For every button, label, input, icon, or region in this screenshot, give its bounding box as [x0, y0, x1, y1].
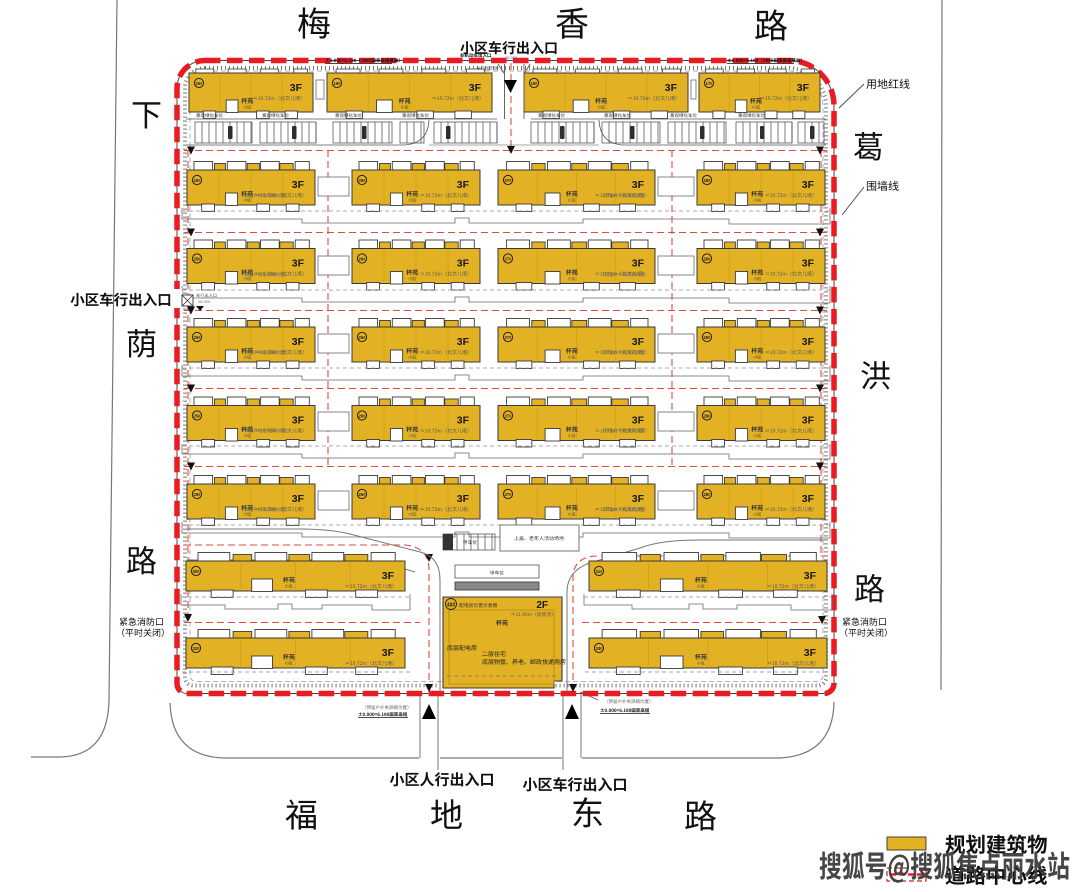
svg-text:3F: 3F	[290, 82, 303, 94]
svg-text:28#: 28#	[704, 178, 712, 183]
svg-text:3F: 3F	[802, 258, 815, 270]
svg-text:3F: 3F	[797, 82, 810, 94]
svg-text:3F: 3F	[292, 493, 305, 505]
svg-text:20#: 20#	[196, 81, 204, 86]
svg-text:26#: 26#	[359, 178, 367, 183]
svg-text:27#: 27#	[505, 178, 513, 183]
svg-text:18#: 18#	[531, 81, 539, 86]
svg-text:26#: 26#	[359, 256, 367, 261]
svg-text:25#: 25#	[194, 492, 202, 497]
svg-text:3F: 3F	[382, 570, 395, 582]
svg-text:25#: 25#	[194, 178, 202, 183]
svg-text:31#: 31#	[596, 569, 604, 574]
svg-text:27#: 27#	[505, 335, 513, 340]
svg-text:3F: 3F	[457, 493, 470, 505]
svg-text:26#: 26#	[359, 492, 367, 497]
svg-text:3F: 3F	[632, 336, 645, 348]
svg-text:32#: 32#	[193, 646, 201, 651]
svg-text:33#: 33#	[596, 646, 604, 651]
svg-text:27#: 27#	[505, 492, 513, 497]
svg-text:25#: 25#	[194, 256, 202, 261]
svg-text:27#: 27#	[505, 413, 513, 418]
svg-text:26#: 26#	[359, 335, 367, 340]
svg-text:3F: 3F	[457, 258, 470, 270]
svg-text:3F: 3F	[802, 179, 815, 191]
svg-text:17#: 17#	[706, 81, 714, 86]
svg-text:28#: 28#	[704, 256, 712, 261]
svg-text:3F: 3F	[292, 179, 305, 191]
svg-text:3F: 3F	[665, 82, 678, 94]
svg-text:26.300: 26.300	[198, 299, 211, 304]
svg-text:27#: 27#	[505, 256, 513, 261]
svg-text:3F: 3F	[632, 493, 645, 505]
svg-text:3F: 3F	[457, 179, 470, 191]
svg-text:26.300: 26.300	[505, 55, 518, 60]
svg-text:25#: 25#	[194, 335, 202, 340]
svg-text:2F: 2F	[536, 600, 548, 611]
svg-text:40#: 40#	[447, 603, 456, 609]
svg-text:28#: 28#	[704, 492, 712, 497]
svg-text:25#: 25#	[194, 413, 202, 418]
svg-text:28#: 28#	[704, 335, 712, 340]
svg-text:3F: 3F	[469, 82, 482, 94]
svg-text:3F: 3F	[632, 258, 645, 270]
svg-text:19#: 19#	[334, 81, 342, 86]
svg-text:30#: 30#	[193, 569, 201, 574]
svg-text:28#: 28#	[704, 413, 712, 418]
svg-text:3F: 3F	[804, 570, 817, 582]
svg-text:3F: 3F	[382, 647, 395, 659]
svg-text:3F: 3F	[292, 415, 305, 427]
svg-text:3F: 3F	[632, 415, 645, 427]
svg-text:3F: 3F	[457, 336, 470, 348]
svg-text:3F: 3F	[802, 336, 815, 348]
svg-text:3F: 3F	[292, 336, 305, 348]
svg-text:3F: 3F	[457, 415, 470, 427]
svg-text:3F: 3F	[802, 493, 815, 505]
svg-text:3F: 3F	[804, 647, 817, 659]
svg-text:3F: 3F	[292, 258, 305, 270]
svg-text:3F: 3F	[632, 179, 645, 191]
svg-text:3F: 3F	[802, 415, 815, 427]
svg-text:26#: 26#	[359, 413, 367, 418]
